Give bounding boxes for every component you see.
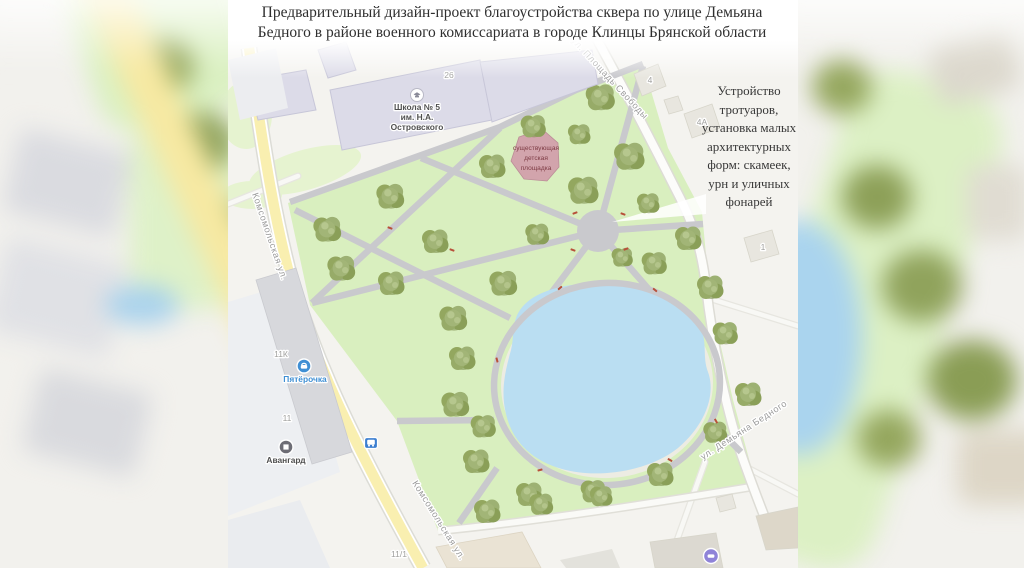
blurred-map-backdrop-right — [797, 0, 1024, 568]
tree — [327, 256, 355, 281]
tree — [376, 184, 404, 209]
tree — [647, 463, 674, 487]
tree — [449, 347, 476, 371]
blur-tree — [857, 410, 921, 468]
central-plaza — [577, 210, 619, 252]
improvements-note: Устройство тротуаров, установка малых ар… — [697, 82, 801, 212]
blur-tree — [812, 60, 872, 114]
school-icon[interactable] — [411, 89, 424, 102]
screenshot-frame: существующая детская площадка — [0, 0, 1024, 568]
tree — [313, 217, 341, 242]
svg-text:им. Н.А.[interactable]: им. Н.А. — [401, 112, 434, 122]
tree — [675, 227, 702, 251]
tree — [697, 276, 724, 300]
tree — [441, 392, 469, 417]
page-title: Предварительный дизайн-проект благоустро… — [214, 3, 810, 42]
pyaterochka-icon[interactable] — [297, 359, 311, 373]
svg-text:Островского[interactable]: Островского — [391, 122, 444, 132]
blur-white-wash — [0, 0, 229, 70]
tree — [642, 252, 667, 274]
tree — [590, 486, 613, 506]
title-line-1: Предварительный дизайн-проект благоустро… — [214, 3, 810, 23]
blurred-map-backdrop-left — [0, 0, 229, 568]
tree — [637, 193, 660, 213]
tree — [568, 124, 591, 144]
tree — [489, 271, 517, 296]
house-number-11: 11 — [283, 413, 292, 423]
blur-building — [957, 430, 1024, 505]
tree — [612, 248, 633, 267]
tree — [439, 306, 467, 331]
bus-stop-icon[interactable] — [365, 438, 378, 449]
school-label[interactable]: Школа № 5 — [394, 102, 440, 112]
blur-white-wash — [797, 0, 1024, 60]
svg-text:существующая: существующая — [513, 145, 560, 152]
avangard-icon[interactable] — [279, 440, 293, 454]
tree — [479, 155, 506, 179]
tree — [525, 224, 549, 245]
blur-building — [21, 367, 153, 477]
tree — [422, 230, 449, 254]
tree — [713, 322, 738, 344]
tree — [614, 143, 644, 170]
tree — [735, 383, 762, 407]
blur-building — [1, 127, 133, 237]
tree — [521, 115, 546, 137]
tree — [586, 84, 615, 110]
svg-text:площадка: площадка — [521, 165, 552, 172]
house-number-11-1: 11/1 — [391, 549, 407, 559]
house-number-1: 1 — [761, 242, 766, 252]
svg-text:детская: детская — [524, 155, 548, 162]
tree — [568, 177, 598, 204]
pyaterochka-label[interactable]: Пятёрочка — [283, 374, 327, 384]
blur-tree — [842, 165, 912, 229]
tree — [529, 494, 553, 515]
blur-pond — [105, 285, 180, 325]
tree — [378, 272, 405, 296]
tree — [471, 415, 496, 437]
store-poi-icon[interactable] — [704, 549, 719, 564]
tree — [474, 500, 501, 524]
avangard-label[interactable]: Авангард — [266, 455, 306, 465]
blur-tree — [927, 340, 1017, 420]
blur-building — [967, 165, 1024, 240]
title-line-2: Бедного в районе военного комиссариата в… — [214, 23, 810, 43]
house-number-11k: 11К — [274, 349, 288, 359]
blur-tree — [882, 250, 962, 322]
tree — [463, 450, 490, 474]
